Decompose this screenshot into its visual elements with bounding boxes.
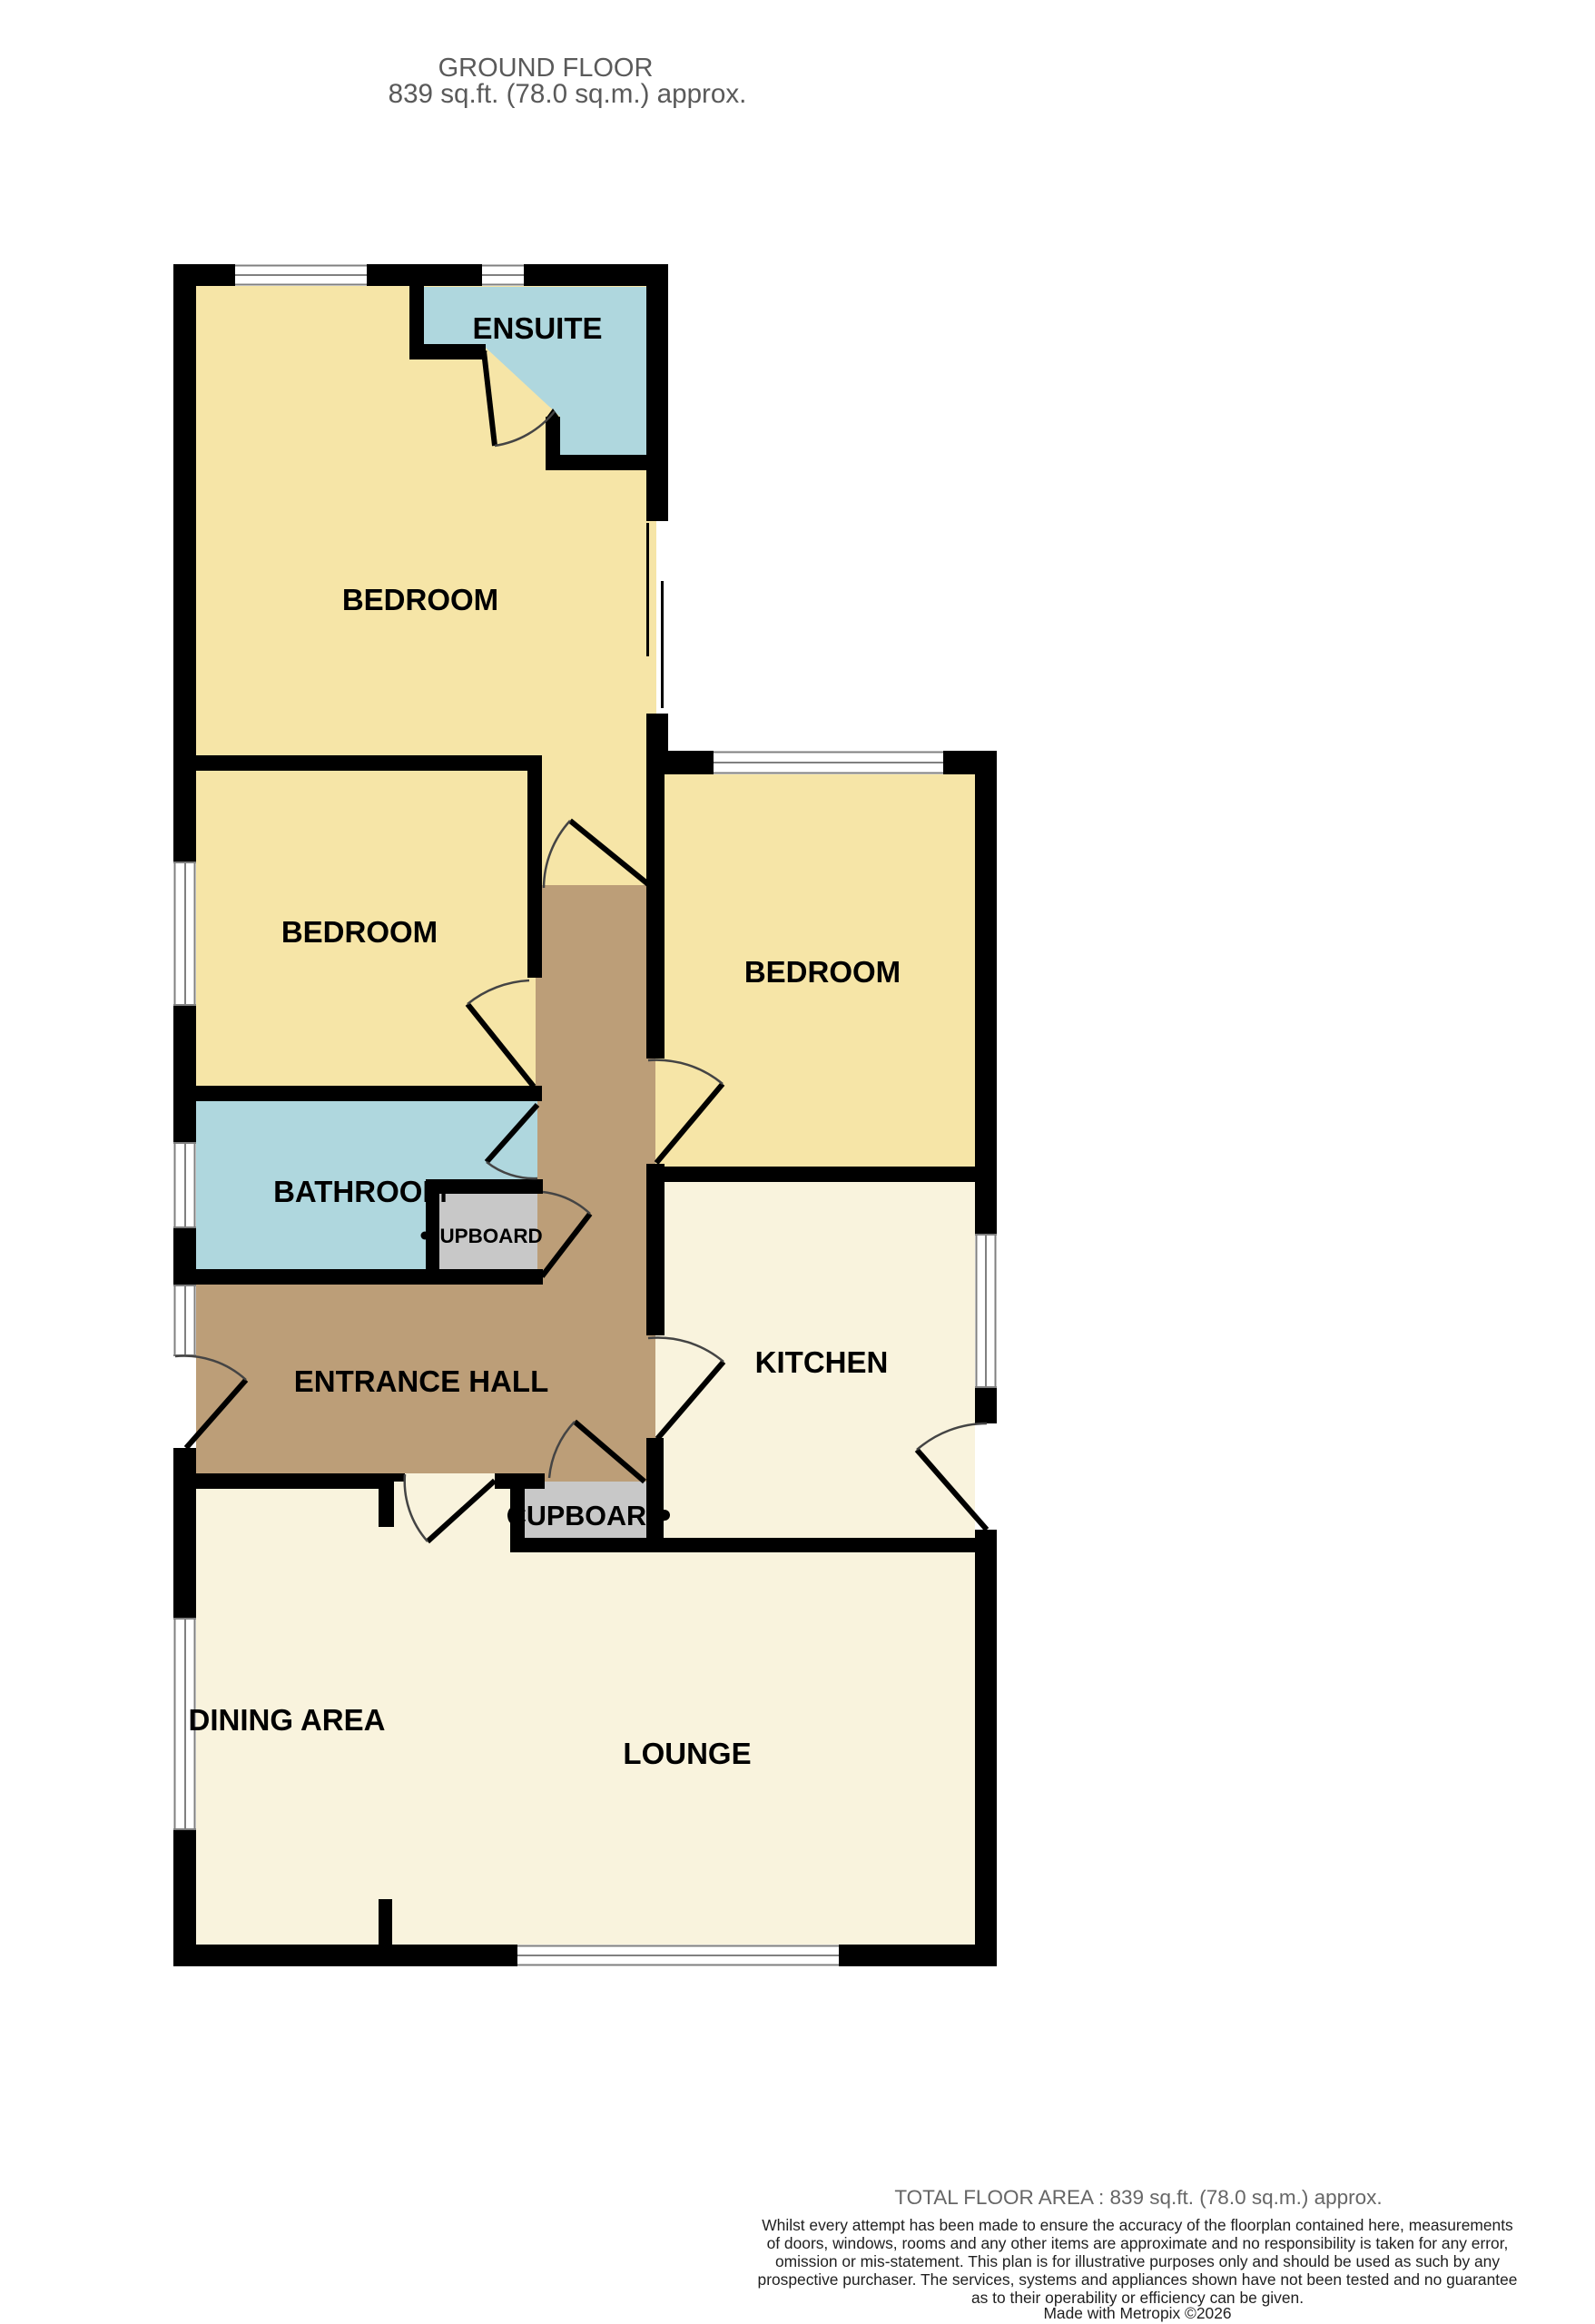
svg-text:BATHROOM: BATHROOM [273, 1175, 448, 1208]
svg-text:ENSUITE: ENSUITE [472, 311, 602, 345]
svg-text:KITCHEN: KITCHEN [755, 1345, 889, 1379]
svg-text:DINING AREA: DINING AREA [189, 1703, 386, 1737]
svg-text:BEDROOM: BEDROOM [342, 583, 498, 616]
svg-text:TOTAL FLOOR AREA : 839 sq.ft.: TOTAL FLOOR AREA : 839 sq.ft. (78.0 sq.m… [894, 2186, 1382, 2209]
svg-text:BEDROOM: BEDROOM [281, 915, 438, 949]
svg-text:CUPBOARD: CUPBOARD [425, 1225, 542, 1247]
svg-text:prospective purchaser. The ser: prospective purchaser. The services, sys… [758, 2270, 1518, 2289]
svg-text:Whilst every attempt has been: Whilst every attempt has been made to en… [762, 2216, 1513, 2234]
svg-text:BEDROOM: BEDROOM [744, 955, 901, 989]
svg-text:Made with Metropix ©2026: Made with Metropix ©2026 [1043, 2304, 1231, 2322]
svg-text:of doors, windows, rooms and a: of doors, windows, rooms and any other i… [767, 2234, 1509, 2252]
svg-text:839 sq.ft. (78.0 sq.m.) approx: 839 sq.ft. (78.0 sq.m.) approx. [389, 79, 747, 109]
svg-text:CUPBOARD: CUPBOARD [507, 1501, 666, 1531]
svg-text:LOUNGE: LOUNGE [623, 1737, 751, 1770]
svg-text:ENTRANCE HALL: ENTRANCE HALL [294, 1364, 548, 1398]
svg-text:omission or mis-statement. Thi: omission or mis-statement. This plan is … [775, 2252, 1500, 2270]
